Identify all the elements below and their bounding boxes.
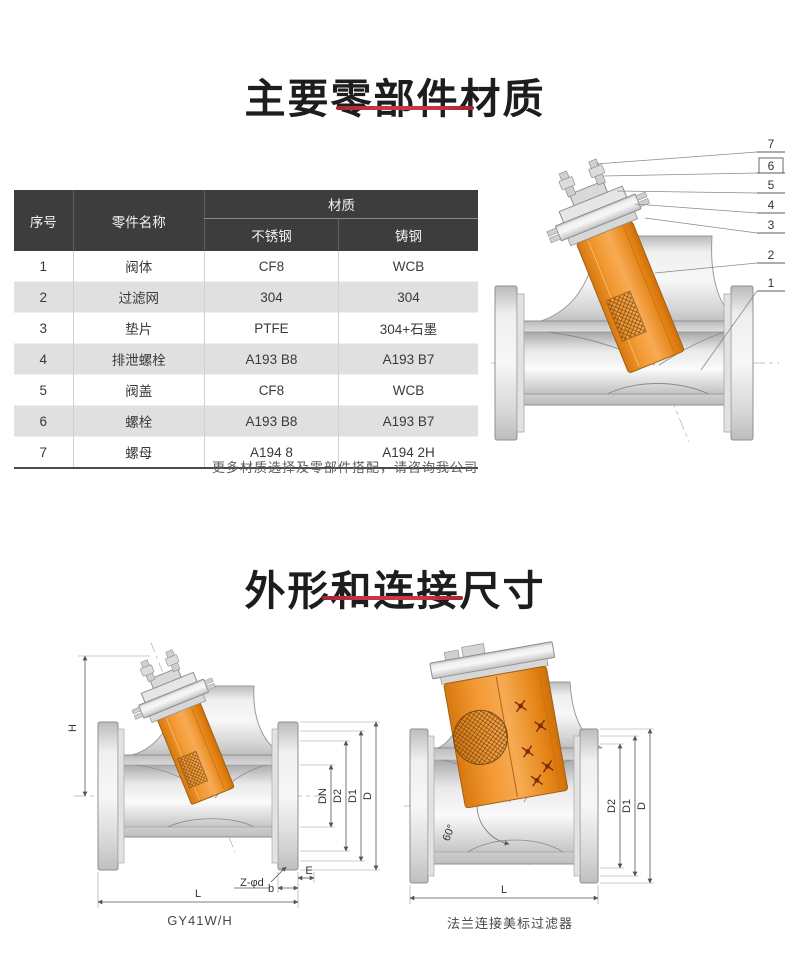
stainless-cell: A193 B8 — [204, 344, 338, 375]
part-no-cell: 6 — [14, 406, 73, 437]
part-no-cell: 1 — [14, 251, 73, 282]
table-row: 5 阀盖 CF8 WCB — [14, 375, 478, 406]
callout-number: 6 — [768, 159, 775, 173]
cast-cell: WCB — [338, 251, 478, 282]
callout-number: 3 — [768, 218, 775, 232]
col-header-stainless: 不锈钢 — [204, 219, 338, 252]
part-name-cell: 螺栓 — [73, 406, 204, 437]
col-header-part-name: 零件名称 — [73, 190, 204, 251]
dimension-label-D2: D2 — [332, 789, 344, 803]
drawing-caption-right: 法兰连接美标过滤器 — [410, 913, 610, 932]
materials-section-title: 主要零部件材质 — [0, 65, 790, 125]
cast-cell: A193 B7 — [338, 344, 478, 375]
stainless-cell: PTFE — [204, 313, 338, 344]
callout-number: 5 — [768, 178, 775, 192]
dimension-label-H: H — [67, 724, 79, 732]
callout-number: 1 — [768, 276, 775, 290]
dimension-label-L: L — [501, 884, 507, 896]
title-underline — [322, 596, 463, 600]
part-name-cell: 阀盖 — [73, 375, 204, 406]
part-no-cell: 5 — [14, 375, 73, 406]
materials-table: 序号 零件名称 材质 不锈钢 铸钢 1 阀体 CF8 WCB 2 过滤网 304… — [14, 190, 478, 469]
dimension-label-b: b — [268, 883, 274, 895]
cast-cell: 304 — [338, 282, 478, 313]
product-datasheet-page: 主要零部件材质 序号 零件名称 材质 不锈钢 铸钢 1 阀体 CF8 WCB 2 — [0, 0, 790, 957]
part-no-cell: 4 — [14, 344, 73, 375]
part-no-cell: 3 — [14, 313, 73, 344]
col-header-cast: 铸钢 — [338, 219, 478, 252]
drawing-caption-left: GY41W/H — [100, 913, 300, 928]
dimension-label-D1: D1 — [621, 799, 633, 813]
right-flange — [731, 286, 753, 440]
dimension-label-D: D — [636, 802, 648, 810]
left-flange — [98, 722, 118, 870]
parts-callout-diagram: 7 6 5 4 3 2 1 — [487, 118, 787, 456]
dimension-label-E: E — [305, 865, 312, 877]
left-flange — [495, 286, 517, 440]
part-name-cell: 过滤网 — [73, 282, 204, 313]
outline-drawing-left: H L DN D2 D1 D Z-φd E b — [28, 636, 390, 912]
outline-drawing-right: 60° D2 D1 D L — [398, 636, 790, 912]
cast-cell: A193 B7 — [338, 406, 478, 437]
callout-number: 4 — [768, 198, 775, 212]
table-row: 4 排泄螺栓 A193 B8 A193 B7 — [14, 344, 478, 375]
stainless-cell: A193 B8 — [204, 406, 338, 437]
cast-cell: WCB — [338, 375, 478, 406]
stainless-cell: CF8 — [204, 251, 338, 282]
callout-number: 2 — [768, 248, 775, 262]
dimension-label-D: D — [362, 792, 374, 800]
col-header-index: 序号 — [14, 190, 73, 251]
dimension-label-DN: DN — [317, 788, 329, 804]
part-name-cell: 排泄螺栓 — [73, 344, 204, 375]
part-no-cell: 2 — [14, 282, 73, 313]
cast-cell: 304+石墨 — [338, 313, 478, 344]
right-flange — [580, 729, 598, 883]
materials-note: 更多材质选择及零部件搭配，请咨询我公司 — [14, 457, 478, 476]
table-row: 1 阀体 CF8 WCB — [14, 251, 478, 282]
dimension-label-D2: D2 — [606, 799, 618, 813]
table-row: 6 螺栓 A193 B8 A193 B7 — [14, 406, 478, 437]
stainless-cell: 304 — [204, 282, 338, 313]
stainless-cell: CF8 — [204, 375, 338, 406]
left-flange — [410, 729, 428, 883]
table-row: 3 垫片 PTFE 304+石墨 — [14, 313, 478, 344]
dimensions-section-title: 外形和连接尺寸 — [0, 557, 790, 617]
title-underline — [336, 106, 474, 110]
dimension-label-bolt-holes: Z-φd — [240, 877, 264, 889]
part-name-cell: 垫片 — [73, 313, 204, 344]
col-header-material-group: 材质 — [204, 190, 478, 219]
dimension-label-D1: D1 — [347, 789, 359, 803]
part-name-cell: 阀体 — [73, 251, 204, 282]
right-flange — [278, 722, 298, 870]
table-row: 2 过滤网 304 304 — [14, 282, 478, 313]
dimension-label-L: L — [195, 888, 201, 900]
callout-number: 7 — [768, 137, 775, 151]
